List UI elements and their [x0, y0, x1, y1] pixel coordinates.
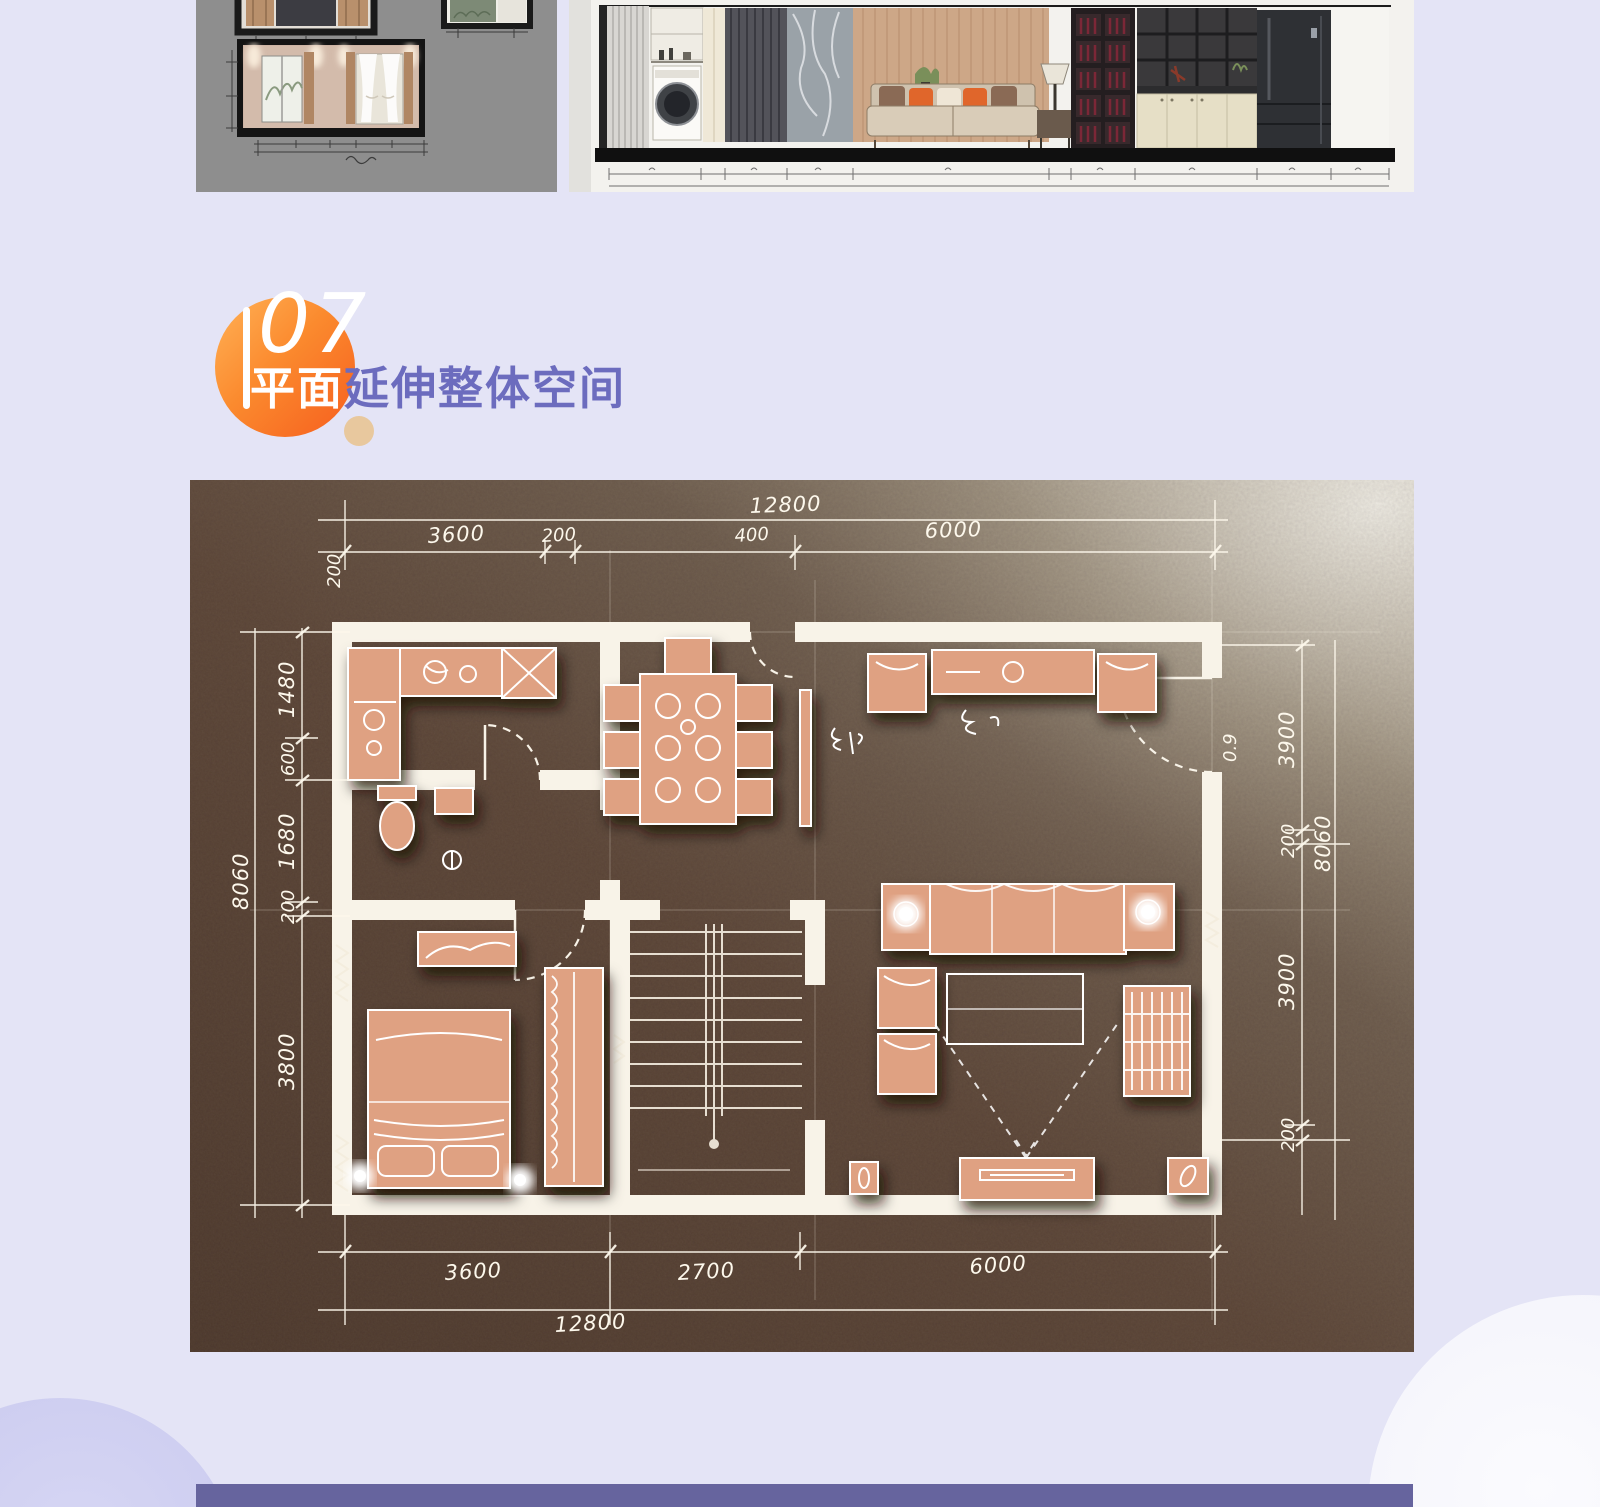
shelf-and-counter — [1137, 8, 1257, 148]
dim-bottom-seg-2: 6000 — [969, 1251, 1028, 1279]
wine-cabinet — [1071, 8, 1135, 148]
slat-panel — [725, 8, 787, 142]
dim-top-seg-2: 400 — [734, 524, 770, 547]
dim-right-seg-3: 200 — [1278, 1118, 1299, 1152]
dim-right-total: 8060 — [1311, 815, 1335, 872]
laundry-zone — [651, 8, 703, 140]
marble-panel — [787, 8, 853, 142]
dim-top-seg-3: 6000 — [924, 517, 982, 543]
dim-right-seg-0: 3900 — [1275, 711, 1299, 768]
elevation-drawings-image — [196, 0, 557, 192]
dim-left-seg-0: 1480 — [275, 661, 299, 718]
dim-right-seg-2: 3900 — [1275, 953, 1299, 1010]
dim-left-seg-2: 1680 — [275, 813, 299, 870]
badge-accent-bar — [243, 307, 250, 409]
section-title-rest: 延伸整体空间 — [344, 363, 626, 414]
dim-bottom-seg-0: 3600 — [444, 1258, 503, 1285]
door-width-label: 0.9 — [1220, 733, 1241, 762]
interior-section-svg — [569, 0, 1414, 192]
dim-bottom-seg-1: 2700 — [677, 1258, 736, 1285]
page: 07 平面延伸整体空间 — [0, 0, 1600, 1507]
floor-plan-image: 12800 3600 200 400 6000 200 8060 1480 60… — [190, 480, 1414, 1352]
dim-bottom-total: 12800 — [554, 1309, 627, 1337]
dim-left-seg-4: 3800 — [275, 1033, 299, 1090]
section-number: 07 — [258, 284, 370, 366]
dim-top-seg-0: 3600 — [427, 521, 486, 548]
small-elevation-b — [444, 0, 530, 38]
section-title-highlight: 平面 — [250, 363, 344, 414]
floor-plan-svg: 12800 3600 200 400 6000 200 8060 1480 60… — [190, 480, 1414, 1352]
next-section-bar — [196, 1484, 1413, 1507]
dim-right-seg-1: 200 — [1278, 824, 1299, 858]
elevation-drawings-svg — [196, 0, 557, 192]
dim-left-seg-3: 200 — [278, 890, 299, 924]
dim-top-small: 200 — [324, 554, 345, 588]
decorative-dot — [344, 416, 374, 446]
dim-top-total: 12800 — [749, 492, 822, 518]
main-elevation — [240, 42, 422, 134]
section-title: 平面延伸整体空间 — [250, 366, 626, 411]
dim-top-seg-1: 200 — [541, 524, 576, 547]
dim-left-seg-1: 600 — [278, 742, 299, 776]
interior-section-image — [569, 0, 1414, 192]
fridge — [1257, 10, 1331, 150]
dim-left-total: 8060 — [229, 853, 253, 910]
hatched-shaft — [607, 6, 649, 152]
